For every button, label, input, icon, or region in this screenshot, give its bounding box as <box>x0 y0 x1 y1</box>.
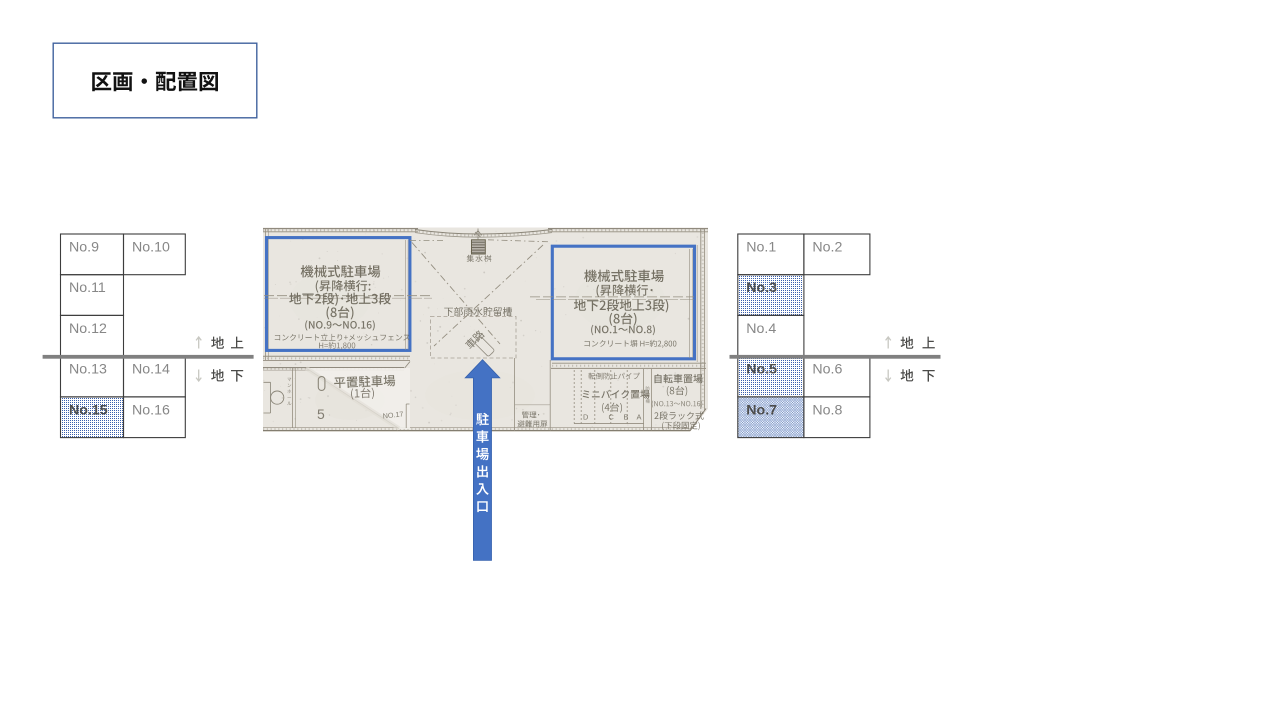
svg-text:C: C <box>609 413 615 422</box>
svg-text:No.9: No.9 <box>69 240 99 256</box>
svg-text:No.7: No.7 <box>746 402 777 418</box>
svg-text:No.8: No.8 <box>812 402 842 418</box>
svg-text:No.14: No.14 <box>132 362 170 378</box>
svg-text:No.12: No.12 <box>69 321 107 337</box>
svg-text:No.4: No.4 <box>746 321 776 337</box>
svg-text:No.15: No.15 <box>69 402 108 418</box>
svg-text:B: B <box>624 413 629 422</box>
svg-text:5: 5 <box>317 406 325 422</box>
svg-text:No.6: No.6 <box>812 362 842 378</box>
svg-text:No.10: No.10 <box>132 240 170 256</box>
svg-text:No.1: No.1 <box>746 240 776 256</box>
svg-text:A: A <box>637 413 642 422</box>
svg-text:No.5: No.5 <box>746 362 777 378</box>
svg-text:No.16: No.16 <box>132 402 170 418</box>
svg-text:No.13: No.13 <box>69 362 107 378</box>
svg-text:D: D <box>583 413 588 422</box>
svg-text:No.11: No.11 <box>69 280 106 296</box>
svg-text:No.2: No.2 <box>812 240 842 256</box>
svg-text:No.3: No.3 <box>746 280 777 296</box>
